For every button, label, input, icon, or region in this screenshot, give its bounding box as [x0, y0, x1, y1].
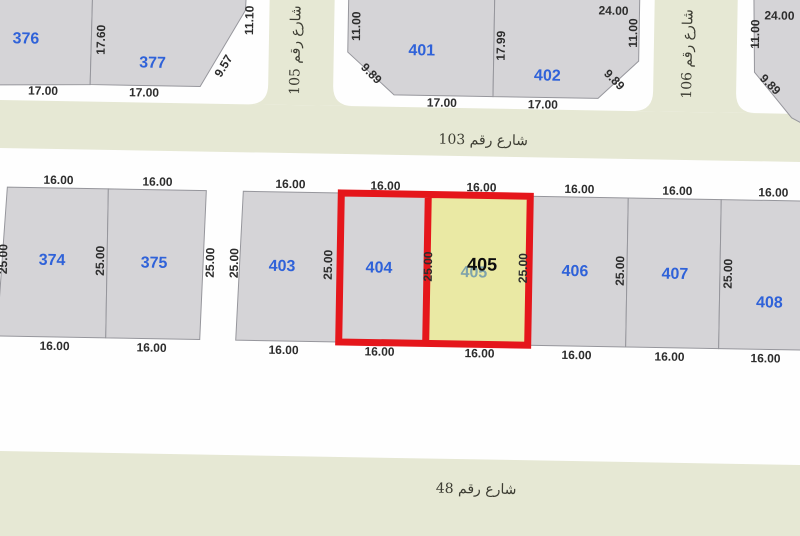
dim-label: 16.00 [561, 348, 592, 363]
dim-label: 24.00 [598, 3, 629, 18]
dim-label: 25.00 [613, 255, 628, 286]
parcel-label-407: 407 [661, 266, 688, 283]
dim-label: 25.00 [93, 245, 108, 276]
parcel-label-374: 374 [39, 252, 66, 269]
parcel-label-408: 408 [756, 294, 783, 311]
street-label-105: شارع رقم 105 [287, 5, 305, 95]
parcel-label-401: 401 [408, 42, 435, 59]
dim-label: 17.60 [94, 24, 109, 55]
dim-label: 16.00 [39, 339, 70, 354]
dim-label: 16.00 [750, 351, 781, 366]
dim-label: 11.10 [242, 5, 257, 35]
dim-label: 25.00 [721, 258, 736, 289]
street-label-106: شارع رقم 106 [679, 9, 697, 99]
dim-label: 16.00 [758, 185, 789, 200]
parcel-label-404: 404 [365, 259, 392, 276]
dim-label: 11.00 [626, 18, 641, 48]
dim-label: 17.99 [494, 30, 509, 61]
dim-label: 16.00 [370, 178, 401, 193]
dim-label: 16.00 [464, 346, 495, 361]
dim-label: 25.00 [227, 248, 242, 279]
parcel-label-403: 403 [269, 258, 296, 275]
street-label-48: شارع رقم 48 [436, 481, 517, 498]
dim-label: 25.00 [321, 249, 336, 280]
dim-label: 16.00 [662, 184, 693, 199]
dim-label: 24.00 [764, 8, 795, 23]
dim-label: 16.00 [364, 344, 395, 359]
dim-label: 11.00 [748, 19, 763, 49]
parcel-label-376: 376 [12, 30, 39, 47]
dim-label: 16.00 [136, 340, 167, 355]
dim-label: 16.00 [142, 174, 173, 189]
dim-label: 17.00 [528, 97, 559, 112]
dim-label: 11.00 [349, 11, 364, 41]
street-48-corridor [0, 451, 800, 536]
dim-label: 25.00 [0, 244, 10, 275]
dim-label: 16.00 [268, 343, 299, 358]
dim-label: 25.00 [516, 253, 531, 284]
parcel-label-406: 406 [561, 263, 588, 280]
dim-label: 17.00 [427, 95, 458, 110]
cadastral-map-viewport[interactable]: 16.00 16.00 16.00 16.00 16.00 16.00 16.0… [0, 0, 800, 536]
parcel-label-405-selected: 405 [467, 254, 497, 275]
parcel-label-402: 402 [534, 67, 561, 84]
dim-label: 16.00 [564, 182, 595, 197]
dim-label: 17.00 [129, 85, 160, 100]
dim-label: 16.00 [466, 180, 497, 195]
dim-label: 17.00 [28, 83, 59, 98]
dim-label: 25.00 [203, 247, 218, 278]
dim-label: 16.00 [275, 177, 306, 192]
cadastral-map[interactable]: 16.00 16.00 16.00 16.00 16.00 16.00 16.0… [0, 0, 800, 536]
dim-label: 25.00 [421, 251, 436, 282]
parcel-label-375: 375 [141, 254, 168, 271]
street-label-103: شارع رقم 103 [438, 132, 528, 150]
dim-label: 16.00 [43, 173, 74, 188]
parcel-label-377: 377 [139, 54, 166, 71]
dim-label: 16.00 [654, 349, 685, 364]
